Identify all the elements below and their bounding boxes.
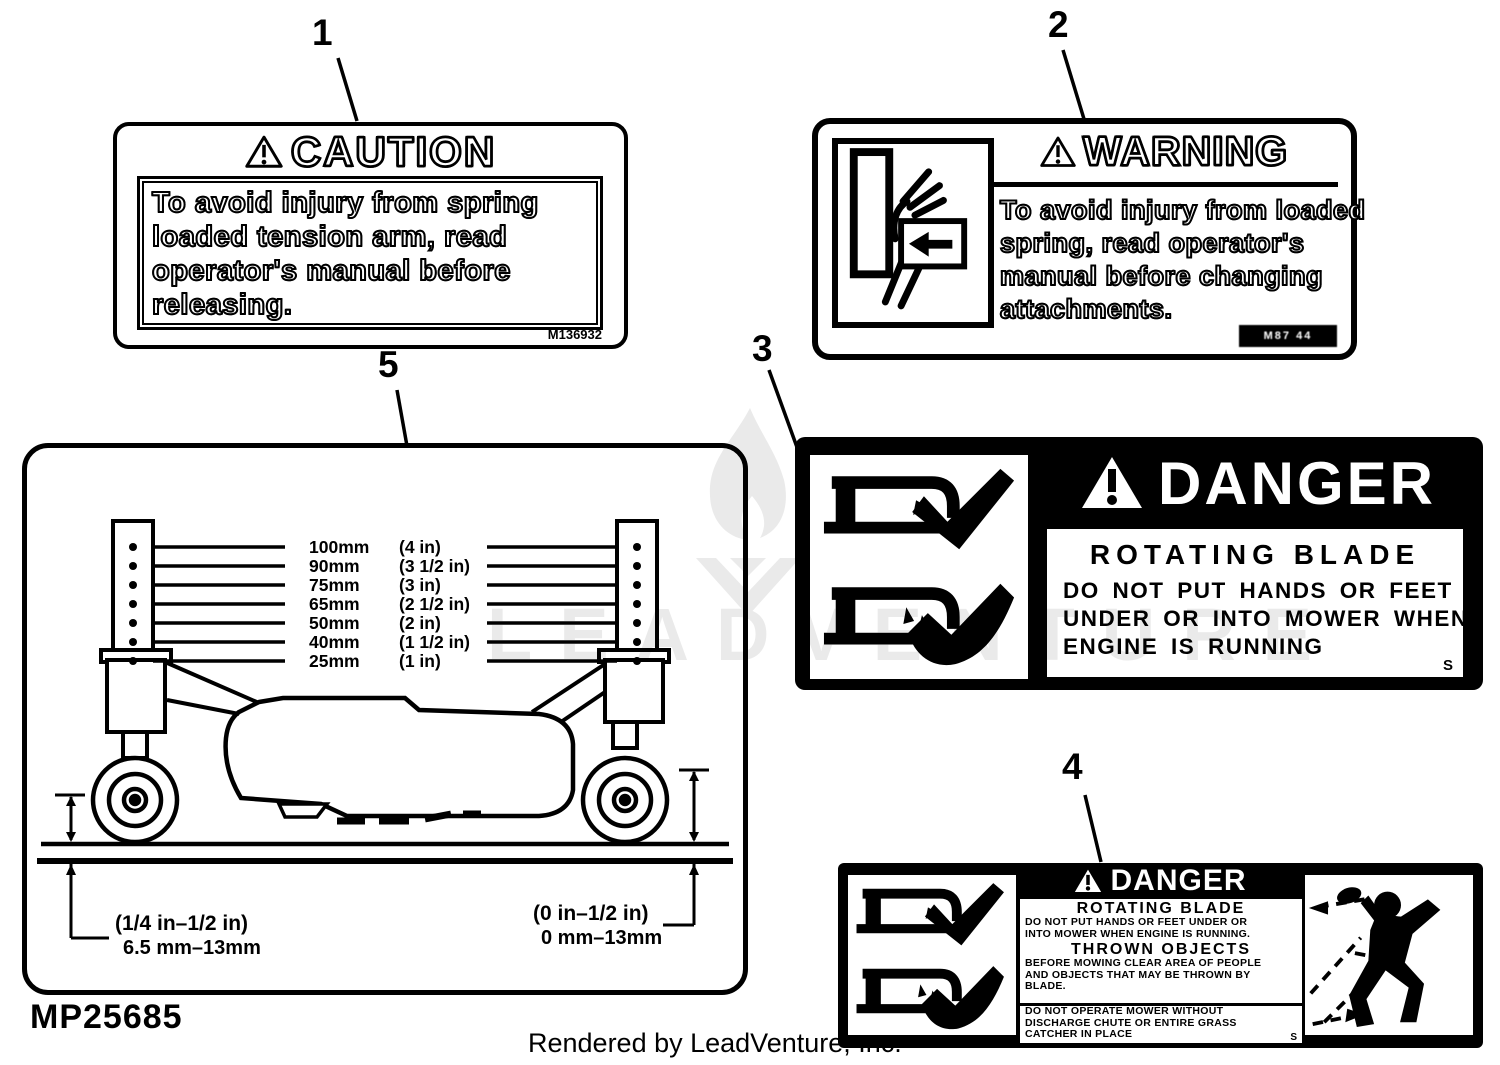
danger-line: AND OBJECTS THAT MAY BE THROWN BY <box>1025 970 1302 982</box>
warning-line: spring, read operator's <box>1000 227 1366 260</box>
callout-5[interactable]: 5 <box>378 346 399 383</box>
danger-triangle-icon <box>1074 868 1102 894</box>
caution-text-box: To avoid injury from spring loaded tensi… <box>137 176 603 330</box>
caution-title: CAUTION <box>291 128 496 176</box>
danger-header: DANGER <box>1018 864 1303 898</box>
danger-text-box: ROTATING BLADE DO NOT PUT HANDS OR FEET … <box>1020 899 1302 1003</box>
mower-pictogram-panel <box>810 455 1028 679</box>
hand-under-mower-icon <box>854 877 1008 953</box>
svg-text:(3 in): (3 in) <box>399 575 441 595</box>
danger-text-box: ROTATING BLADE DO NOT PUT HANDS OR FEET … <box>1047 529 1463 677</box>
svg-text:0 mm–13mm: 0 mm–13mm <box>541 927 662 949</box>
callout-2[interactable]: 2 <box>1048 6 1069 43</box>
danger-header: DANGER <box>1039 443 1477 523</box>
svg-text:40mm: 40mm <box>309 632 360 652</box>
warning-title: WARNING <box>1083 128 1288 175</box>
header-divider <box>990 182 1338 187</box>
danger-title: DANGER <box>1158 449 1436 518</box>
rotating-blade-title: ROTATING BLADE <box>1047 539 1463 571</box>
caution-line: To avoid injury from spring <box>152 186 596 220</box>
danger-line: DO NOT PUT HANDS OR FEET UNDER OR <box>1025 917 1302 929</box>
svg-text:(0 in–1/2 in): (0 in–1/2 in) <box>533 902 649 925</box>
danger-line: DO NOT OPERATE MOWER WITHOUT <box>1025 1006 1302 1018</box>
svg-text:(1 1/2 in): (1 1/2 in) <box>399 632 470 652</box>
danger-thrown-objects-decal: DANGER ROTATING BLADE DO NOT PUT HANDS O… <box>838 863 1483 1048</box>
left-gauge-wheel <box>93 758 177 842</box>
right-height-tower <box>599 521 669 748</box>
svg-text:(2 1/2 in): (2 1/2 in) <box>399 594 470 614</box>
callout-4[interactable]: 4 <box>1062 748 1083 785</box>
danger-triangle-icon <box>1080 454 1144 512</box>
warning-header: WARNING <box>990 128 1338 175</box>
right-dimension <box>663 770 709 925</box>
part-number: MP25685 <box>30 998 183 1037</box>
caution-line: operator's manual before <box>152 254 596 288</box>
decal-corner-mark: S <box>1443 657 1453 674</box>
svg-text:(3 1/2 in): (3 1/2 in) <box>399 556 470 576</box>
danger-line: INTO MOWER WHEN ENGINE IS RUNNING. <box>1025 929 1302 941</box>
dimension-labels: (1/4 in–1/2 in) 6.5 mm–13mm (0 in–1/2 in… <box>115 902 662 959</box>
danger-line: BEFORE MOWING CLEAR AREA OF PEOPLE <box>1025 958 1302 970</box>
danger-line: DO NOT PUT HANDS OR FEET <box>1063 577 1463 605</box>
svg-text:65mm: 65mm <box>309 594 360 614</box>
svg-text:(1 in): (1 in) <box>399 651 441 671</box>
danger-line: CATCHER IN PLACE <box>1025 1029 1302 1041</box>
cutting-height-diagram: 100mm(4 in) 90mm(3 1/2 in) 75mm(3 in) 65… <box>22 443 748 995</box>
height-setting-lines <box>153 547 617 661</box>
thrown-object-pictogram-panel <box>1305 875 1473 1035</box>
caution-header: CAUTION <box>117 128 624 176</box>
caution-line: releasing. <box>152 288 596 322</box>
parts-diagram-page: 1 2 3 4 5 CAUTION To avoid injury from s… <box>0 0 1500 1065</box>
warning-triangle-icon <box>245 135 283 169</box>
warning-line: To avoid injury from loaded <box>1000 194 1366 227</box>
svg-text:75mm: 75mm <box>309 575 360 595</box>
mower-deck-diagram: 100mm(4 in) 90mm(3 1/2 in) 75mm(3 in) 65… <box>27 448 743 990</box>
svg-text:6.5 mm–13mm: 6.5 mm–13mm <box>123 937 261 959</box>
warning-decal: WARNING To avoid injury from loaded spri… <box>812 118 1357 360</box>
svg-text:(1/4 in–1/2 in): (1/4 in–1/2 in) <box>115 912 248 935</box>
foot-under-mower-icon <box>854 957 1008 1033</box>
warning-text: To avoid injury from loaded spring, read… <box>1000 194 1366 326</box>
height-value-table: 100mm(4 in) 90mm(3 1/2 in) 75mm(3 in) 65… <box>309 537 470 671</box>
mower-pictogram-panel <box>848 875 1016 1035</box>
mower-deck-body <box>165 662 605 821</box>
danger-operate-box: DO NOT OPERATE MOWER WITHOUT DISCHARGE C… <box>1020 1006 1302 1043</box>
svg-text:100mm: 100mm <box>309 537 369 557</box>
callout-1[interactable]: 1 <box>312 14 333 51</box>
danger-rotating-blade-decal: DANGER ROTATING BLADE DO NOT PUT HANDS O… <box>795 437 1483 690</box>
svg-text:(2 in): (2 in) <box>399 613 441 633</box>
svg-text:90mm: 90mm <box>309 556 360 576</box>
right-gauge-wheel <box>583 758 667 842</box>
hand-under-mower-icon <box>822 459 1018 561</box>
caution-line: loaded tension arm, read <box>152 220 596 254</box>
pinch-point-pictogram-box <box>832 138 994 328</box>
rotating-blade-title: ROTATING BLADE <box>1020 900 1302 917</box>
danger-line: ENGINE IS RUNNING <box>1063 633 1463 661</box>
foot-under-mower-icon <box>822 569 1018 673</box>
danger-title: DANGER <box>1110 864 1246 898</box>
danger-line: UNDER OR INTO MOWER WHEN <box>1063 605 1463 633</box>
warning-triangle-icon <box>1040 136 1076 168</box>
warning-line: attachments. <box>1000 293 1366 326</box>
caution-decal: CAUTION To avoid injury from spring load… <box>113 122 628 349</box>
warning-line: manual before changing <box>1000 260 1366 293</box>
svg-text:25mm: 25mm <box>309 651 360 671</box>
callout-3[interactable]: 3 <box>752 330 773 367</box>
svg-text:(4 in): (4 in) <box>399 537 441 557</box>
decal-part-code: M87 44 <box>1239 325 1337 347</box>
svg-text:50mm: 50mm <box>309 613 360 633</box>
decal-corner-mark: S <box>1290 1032 1297 1043</box>
pinch-point-icon <box>838 144 976 310</box>
running-person-icon <box>1305 875 1473 1035</box>
thrown-objects-title: THROWN OBJECTS <box>1020 941 1302 958</box>
decal-part-code: M136932 <box>548 327 602 342</box>
danger-line: BLADE. <box>1025 981 1302 993</box>
